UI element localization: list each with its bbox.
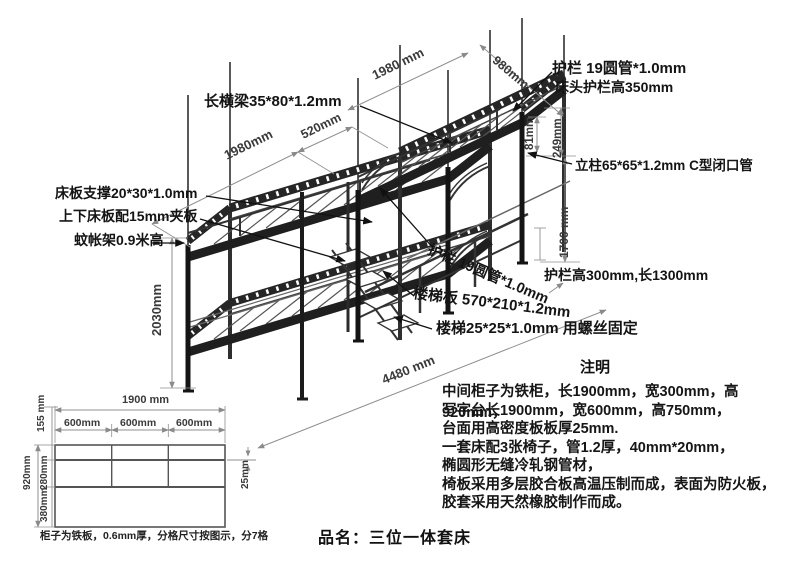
product-name: 品名：三位一体套床 xyxy=(318,524,471,548)
notes-line: 台面用高密度板板厚25mm. xyxy=(442,417,794,436)
notes-line: 胶套采用天然橡胶制作而成。 xyxy=(442,491,794,510)
cabinet-dim-row-middle: 280mm xyxy=(39,456,50,490)
notes-line: 中间柜子为铁柜，长1900mm，宽300mm，高920mm， xyxy=(442,380,794,399)
cabinet-dim-row-bottom: 380mm xyxy=(39,488,50,522)
cabinet-dim-width-total: 1900 mm xyxy=(122,394,169,406)
notes-line: 写字台长1900mm，宽600mm，高750mm， xyxy=(442,399,794,418)
cabinet-dim-row-top: 155 mm xyxy=(36,395,47,432)
cabinet-dim-cell-2: 600mm xyxy=(120,418,156,430)
cabinet-caption: 柜子为铁板，0.6mm厚，分格尺寸按图示，分7格 xyxy=(40,531,268,543)
label-side-guard-size: 护栏高300mm,长1300mm xyxy=(544,268,708,283)
notes-line: 一套床配3张椅子，管1.2厚，40mm*20mm， xyxy=(442,436,794,455)
label-board: 上下床板配15mm夹板 xyxy=(59,209,197,224)
notes-line: 椅板采用多层胶合板高温压制而成，表面为防火板， xyxy=(442,473,794,492)
label-mosquito-net: 蚊帐架0.9米高 xyxy=(74,233,163,248)
cabinet-dim-cell-1: 600mm xyxy=(64,418,100,430)
label-post: 立柱65*65*1.2mm C型闭口管 xyxy=(575,159,753,174)
cabinet-dim-cell-3: 600mm xyxy=(176,418,212,430)
dim-head-height: 249mm xyxy=(552,118,565,158)
technical-drawing-page: 长横梁35*80*1.2mm 护栏 19圆管*1.0mm 床头护栏高350mm … xyxy=(0,0,800,565)
cabinet-dim-divider: 25mm xyxy=(240,460,251,489)
notes-line: 椭圆形无缝冷轧钢管材， xyxy=(442,454,794,473)
label-long-beam: 长横梁35*80*1.2mm xyxy=(204,94,342,111)
notes-title: 注明 xyxy=(442,356,794,377)
label-board-support: 床板支撑20*30*1.0mm xyxy=(55,186,197,201)
label-head-guard-height: 床头护栏高350mm xyxy=(555,80,673,95)
label-head-guard-tube: 护栏 19圆管*1.0mm xyxy=(552,61,686,78)
notes-block: 注明 中间柜子为铁柜，长1900mm，宽300mm，高920mm， 写字台长19… xyxy=(442,356,794,510)
dim-total-height: 2030mm xyxy=(150,284,164,336)
dim-rail-offset: 81mm xyxy=(524,117,537,150)
label-ladder-tube: 楼梯25*25*1.0mm 用螺丝固定 xyxy=(436,321,638,338)
cabinet-dim-height-total: 920mm xyxy=(22,456,33,490)
dim-clearance-height: 1700 mm xyxy=(558,207,571,258)
